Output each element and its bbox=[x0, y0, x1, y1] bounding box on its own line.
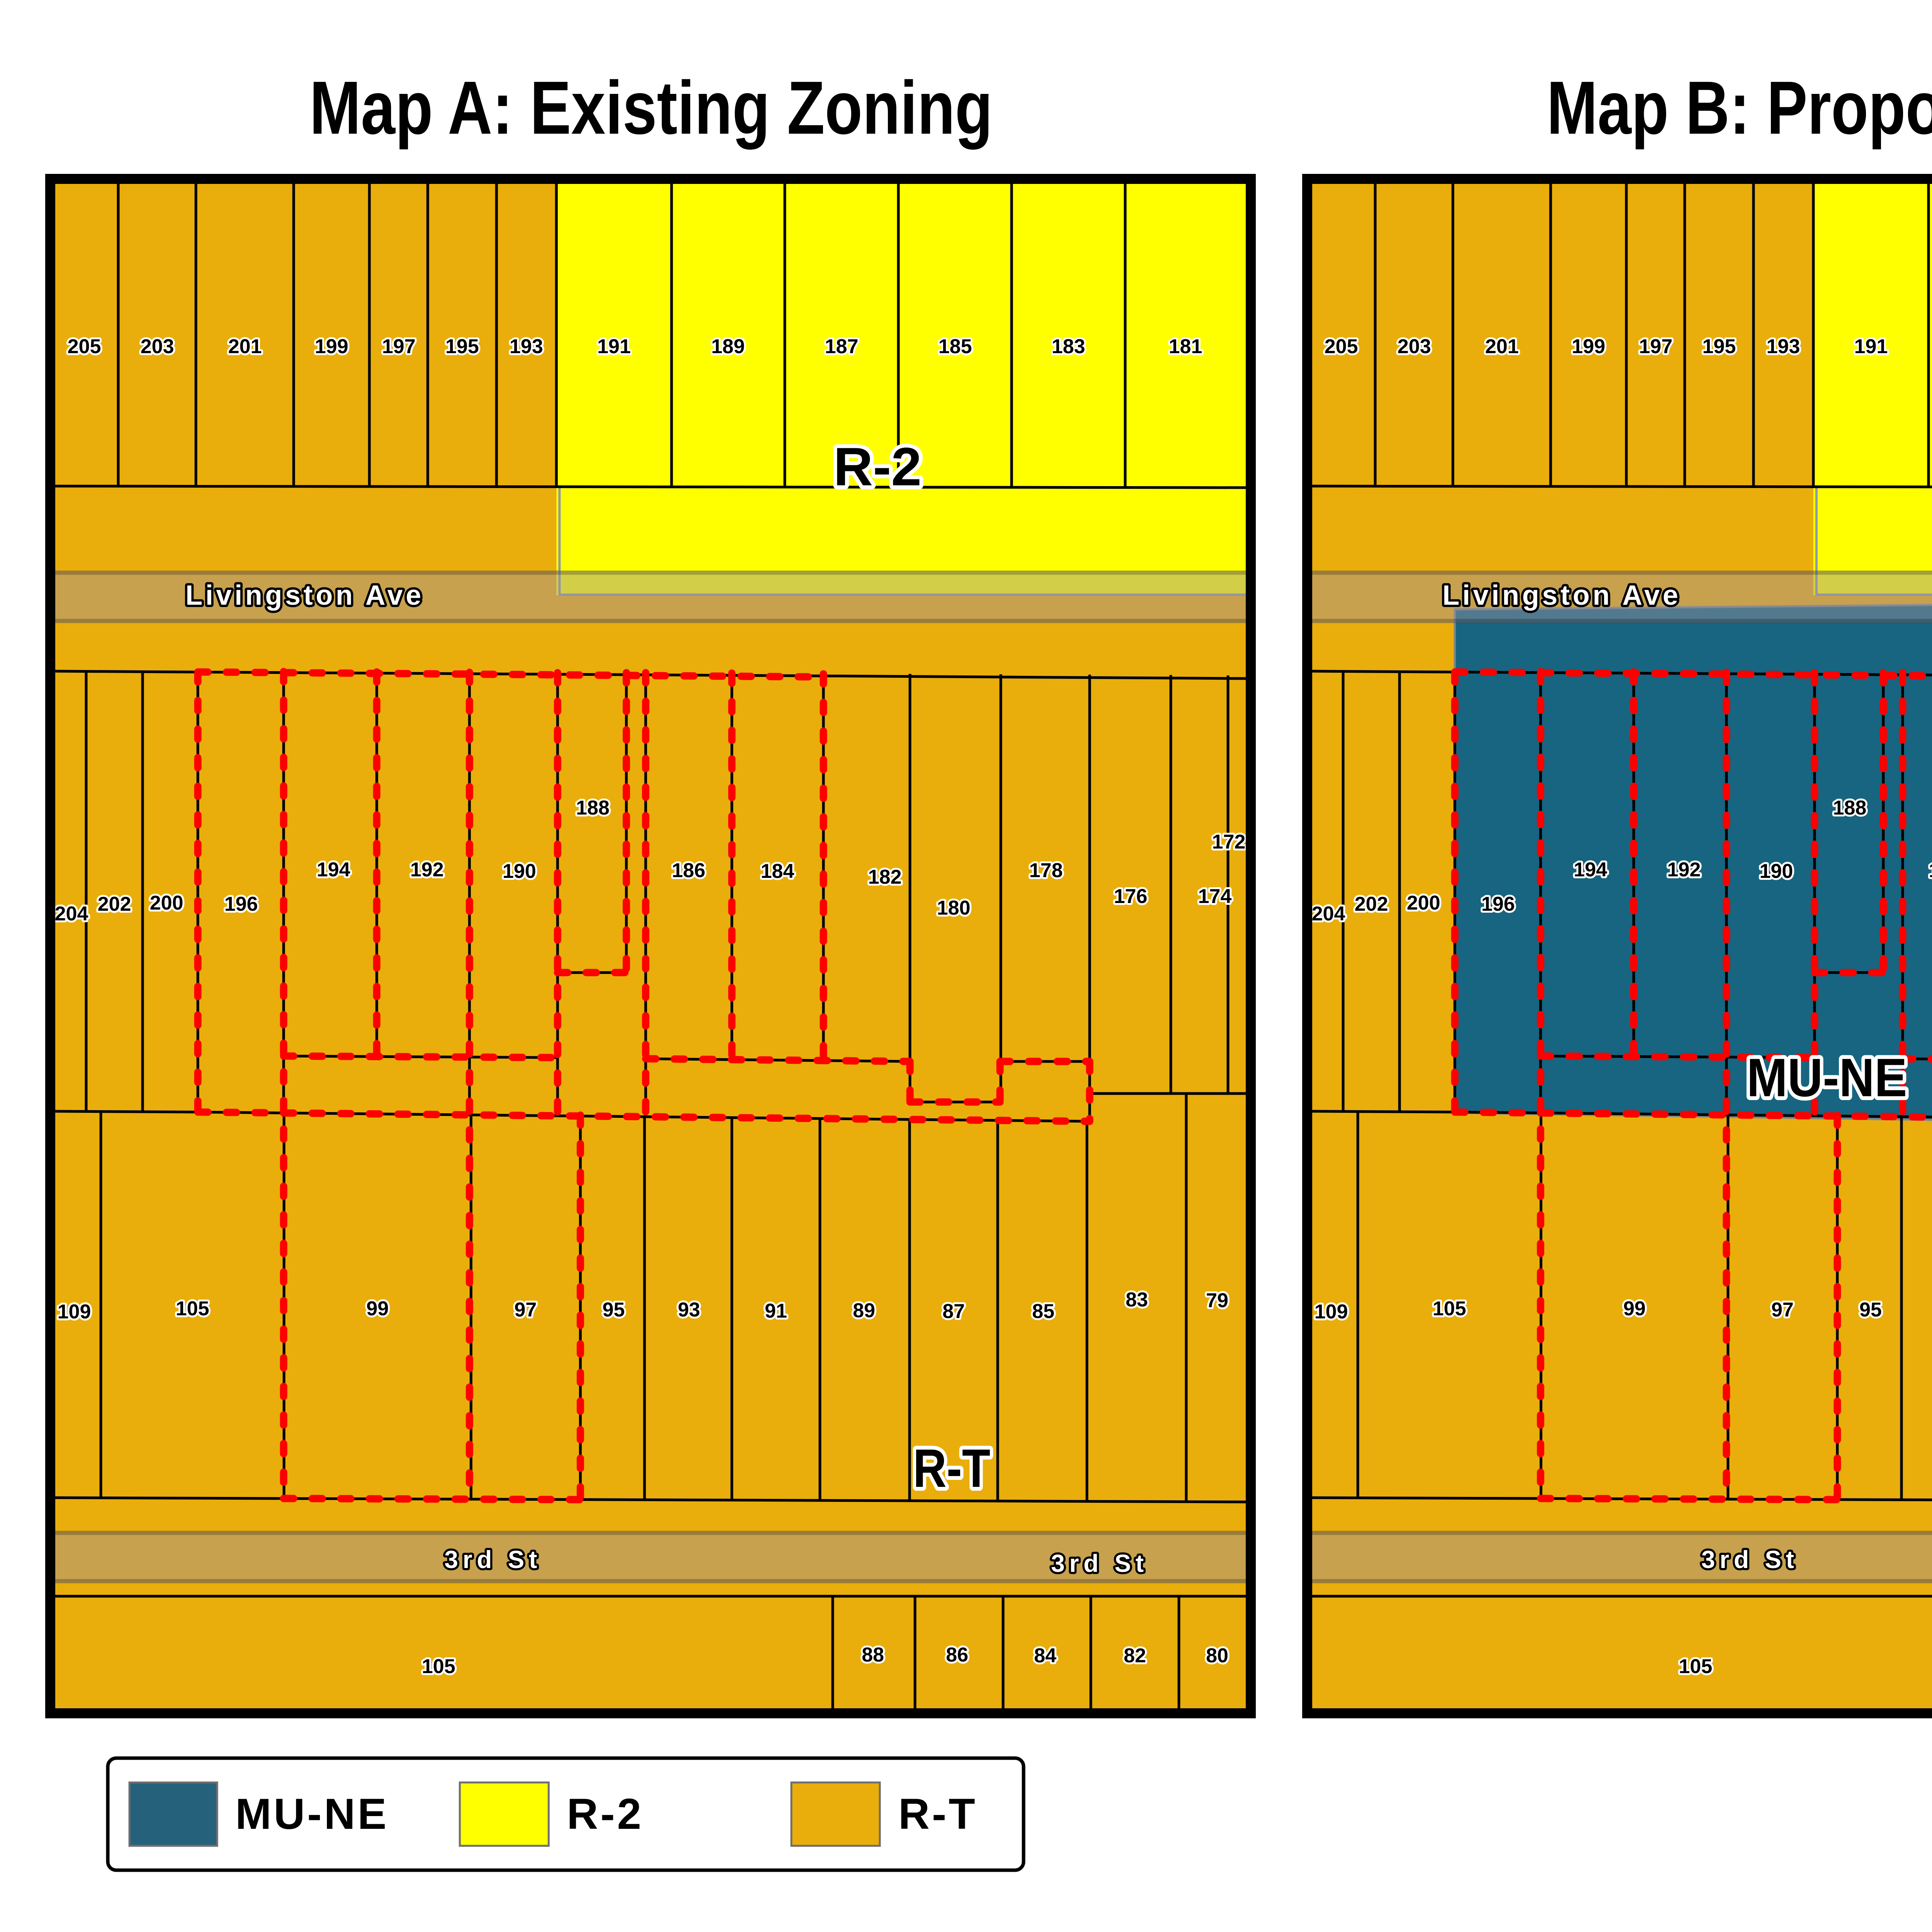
svg-text:Map A: Existing Zoning: Map A: Existing Zoning bbox=[310, 66, 993, 150]
svg-text:Map B: Proposed Zoning: Map B: Proposed Zoning bbox=[1547, 66, 1932, 150]
svg-text:MU-NE: MU-NE bbox=[235, 1790, 389, 1838]
svg-text:R-2: R-2 bbox=[567, 1790, 643, 1838]
svg-text:R-T: R-T bbox=[913, 1438, 990, 1498]
svg-text:MU-NE: MU-NE bbox=[1747, 1047, 1907, 1108]
svg-text:R-T: R-T bbox=[898, 1790, 978, 1838]
svg-text:R-2: R-2 bbox=[833, 436, 922, 497]
svg-text:172: 172 bbox=[1212, 831, 1246, 853]
